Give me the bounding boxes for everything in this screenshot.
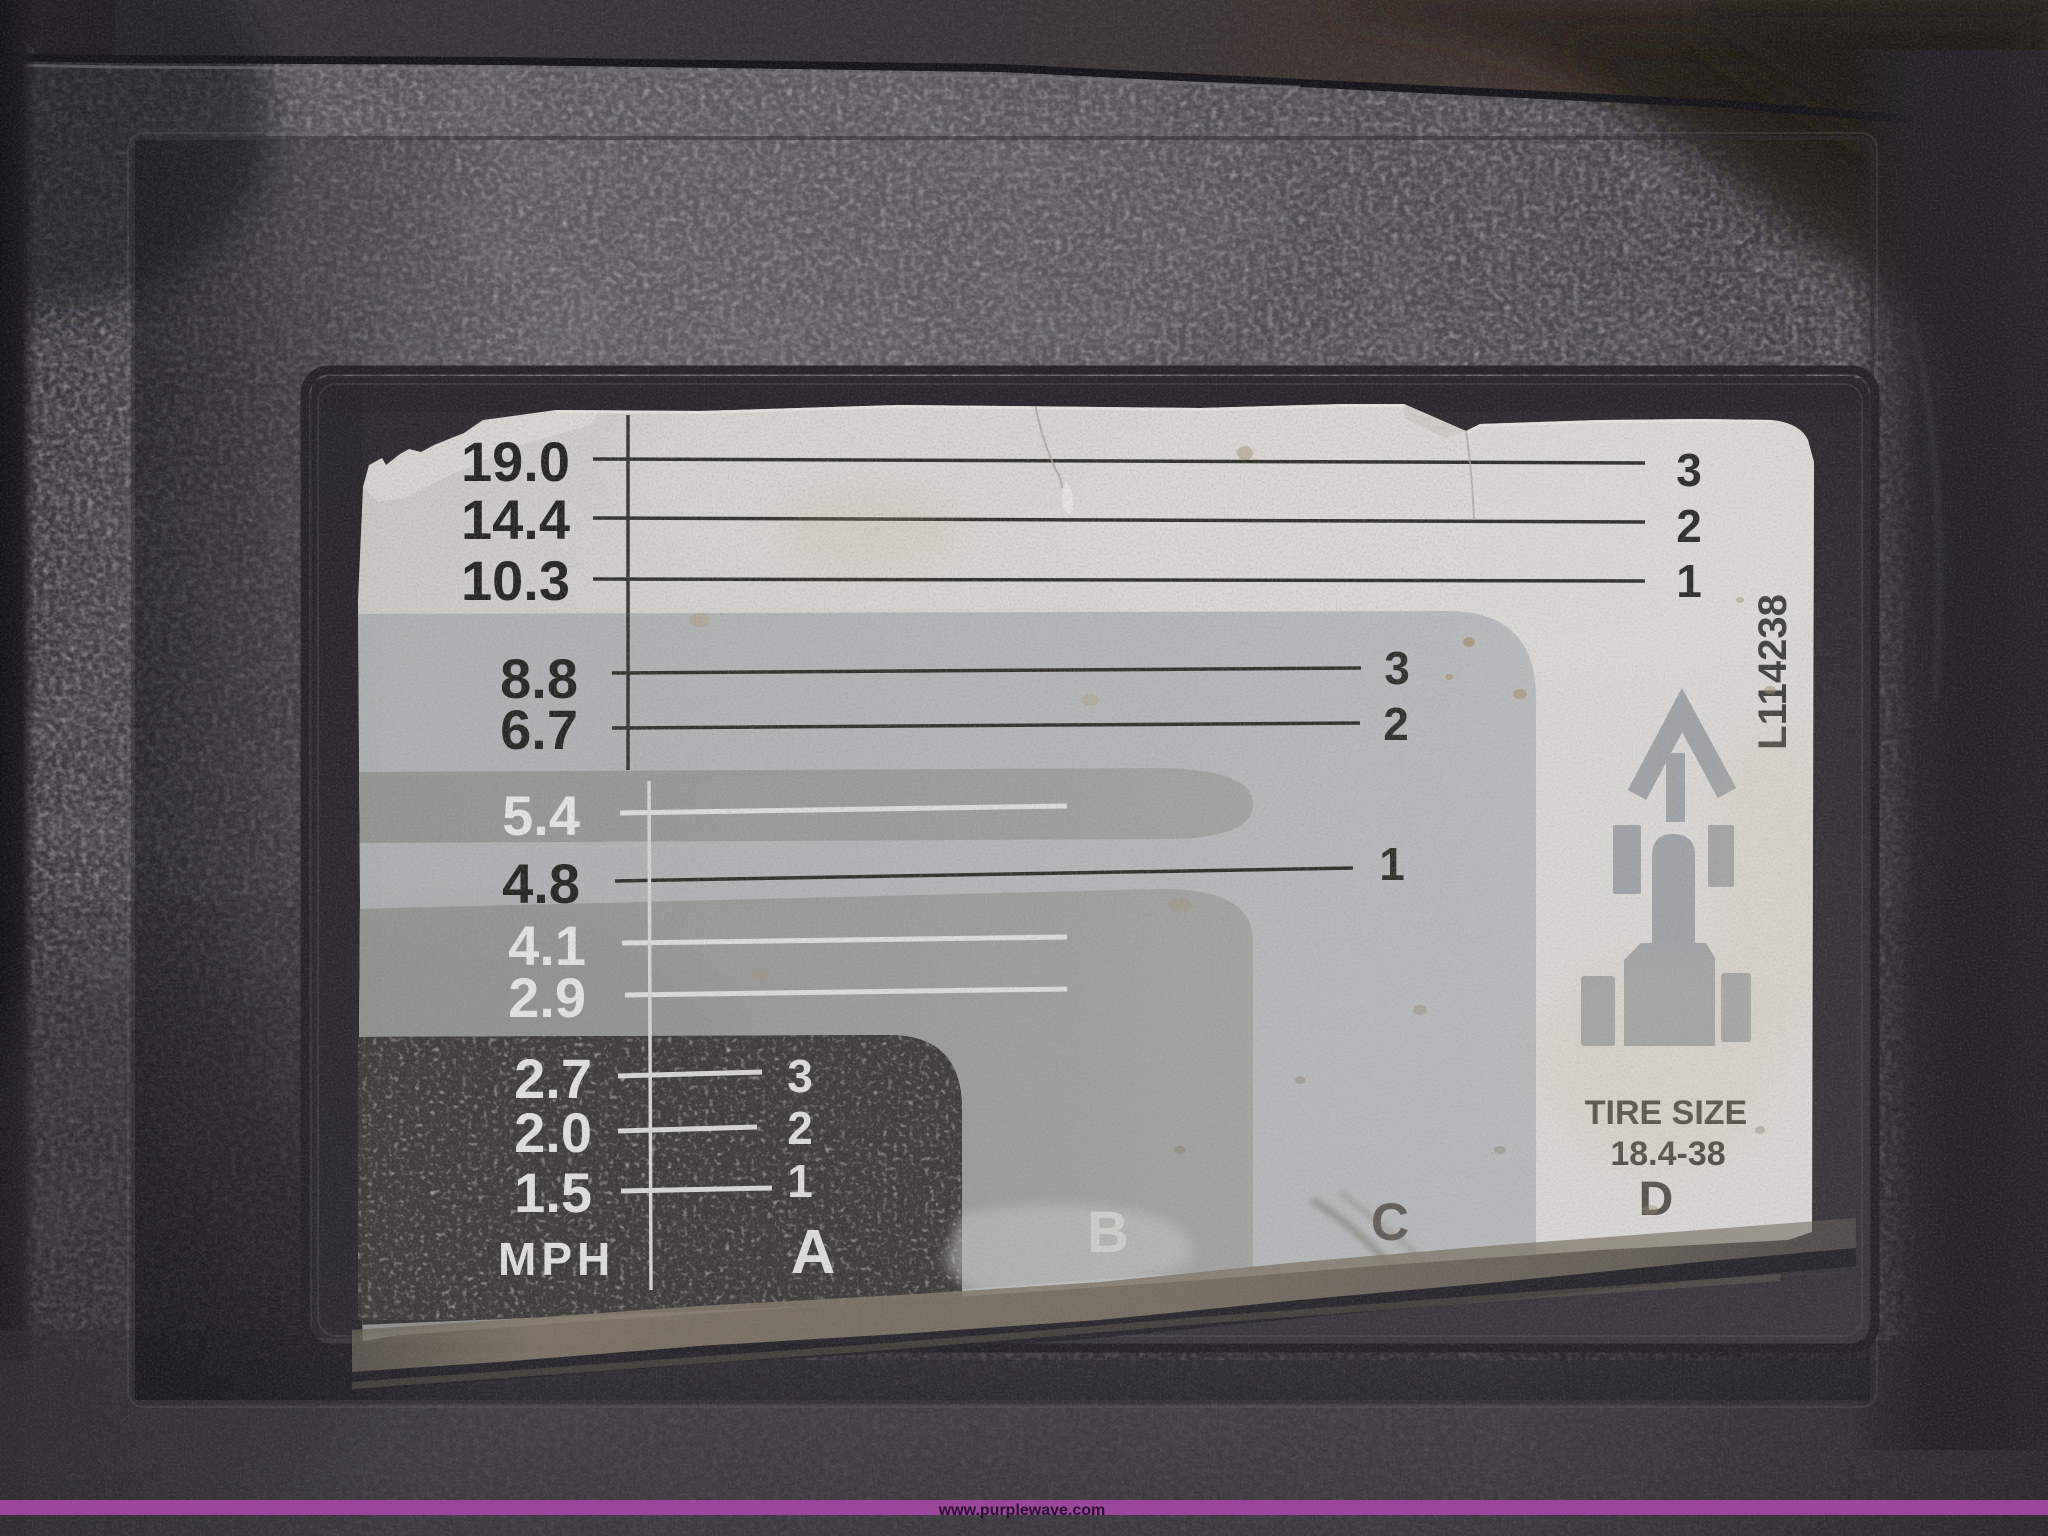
svg-text:www.purplewave.com: www.purplewave.com xyxy=(938,1502,1106,1519)
